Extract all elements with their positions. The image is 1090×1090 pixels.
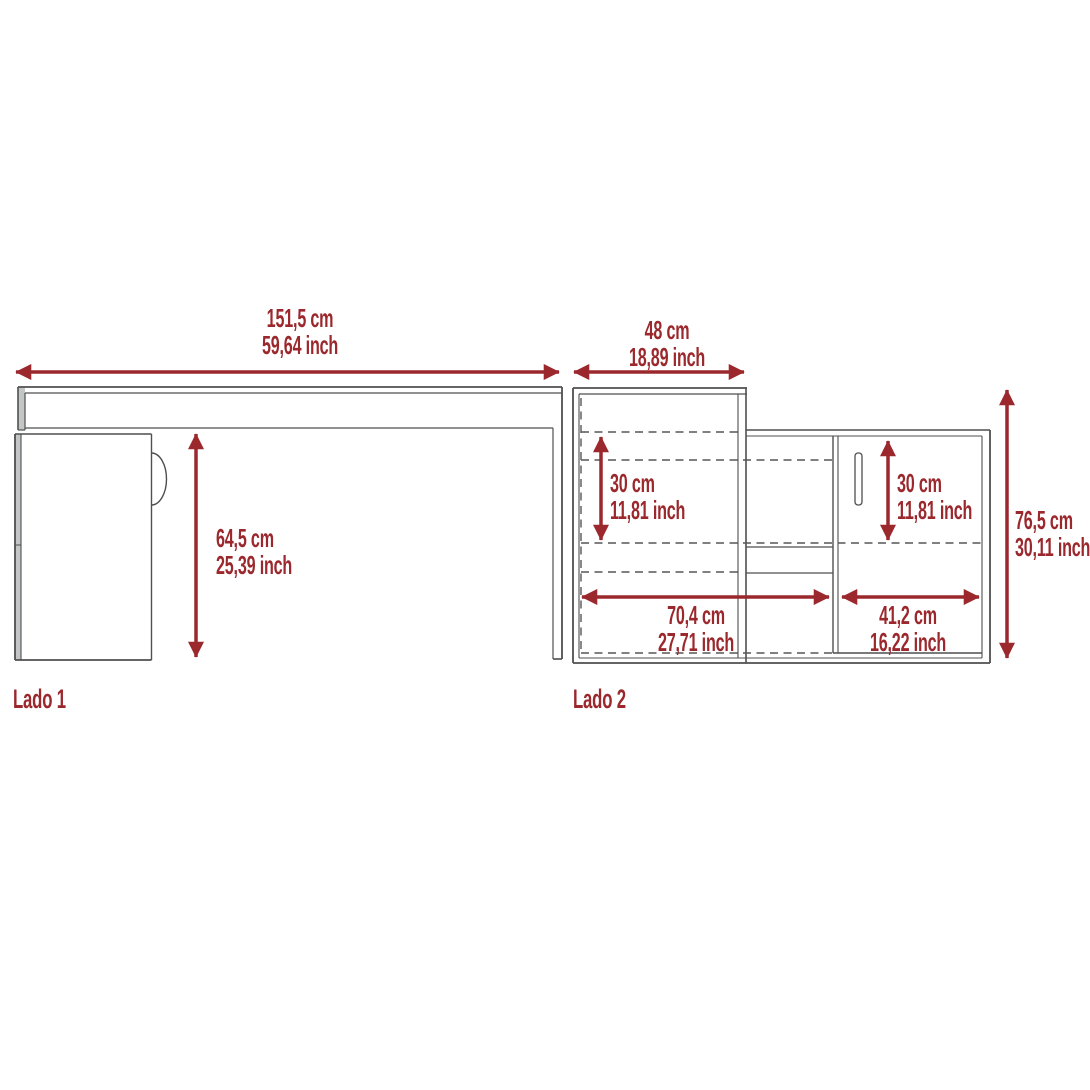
side2-lower-left-label: 70,4 cm 27,71 inch — [658, 602, 734, 656]
side2-left-shelf-cm: 30 cm — [610, 470, 685, 497]
side2-depth-cm: 48 cm — [629, 317, 705, 344]
side2-lower-right-inch: 16,22 inch — [870, 629, 946, 656]
side2-depth-inch: 18,89 inch — [629, 344, 705, 371]
side2-lower-right-label: 41,2 cm 16,22 inch — [870, 602, 946, 656]
side1-width-cm: 151,5 cm — [262, 305, 338, 332]
side2-right-shelf-inch: 11,81 inch — [897, 497, 972, 524]
side2-height-inch: 30,11 inch — [1015, 534, 1090, 561]
side2-view-label: Lado 2 — [573, 686, 626, 713]
side2-depth-label: 48 cm 18,89 inch — [629, 317, 705, 371]
furniture-linework — [0, 0, 1090, 1090]
cabinet-door-handle-arc — [152, 453, 167, 505]
side1-width-label: 151,5 cm 59,64 inch — [262, 305, 338, 359]
desk-left-edge-panel — [18, 387, 25, 430]
dimension-diagram: 151,5 cm 59,64 inch 48 cm 18,89 inch 64,… — [0, 0, 1090, 1090]
door-handle — [855, 453, 862, 505]
side2-right-shelf-cm: 30 cm — [897, 470, 972, 497]
side1-width-inch: 59,64 inch — [262, 332, 338, 359]
side2-height-label: 76,5 cm 30,11 inch — [1015, 507, 1090, 561]
side2-lower-left-cm: 70,4 cm — [658, 602, 734, 629]
side2-lower-left-inch: 27,71 inch — [658, 629, 734, 656]
side2-height-cm: 76,5 cm — [1015, 507, 1090, 534]
side1-height-label: 64,5 cm 25,39 inch — [216, 525, 292, 579]
side2-right-shelf-label: 30 cm 11,81 inch — [897, 470, 972, 524]
side1-view-label: Lado 1 — [13, 686, 66, 713]
dimension-arrows — [16, 372, 1007, 658]
side1-height-cm: 64,5 cm — [216, 525, 292, 552]
side1-height-inch: 25,39 inch — [216, 552, 292, 579]
side2-left-shelf-label: 30 cm 11,81 inch — [610, 470, 685, 524]
side2-left-shelf-inch: 11,81 inch — [610, 497, 685, 524]
side1-drawing — [15, 387, 562, 660]
side2-lower-right-cm: 41,2 cm — [870, 602, 946, 629]
